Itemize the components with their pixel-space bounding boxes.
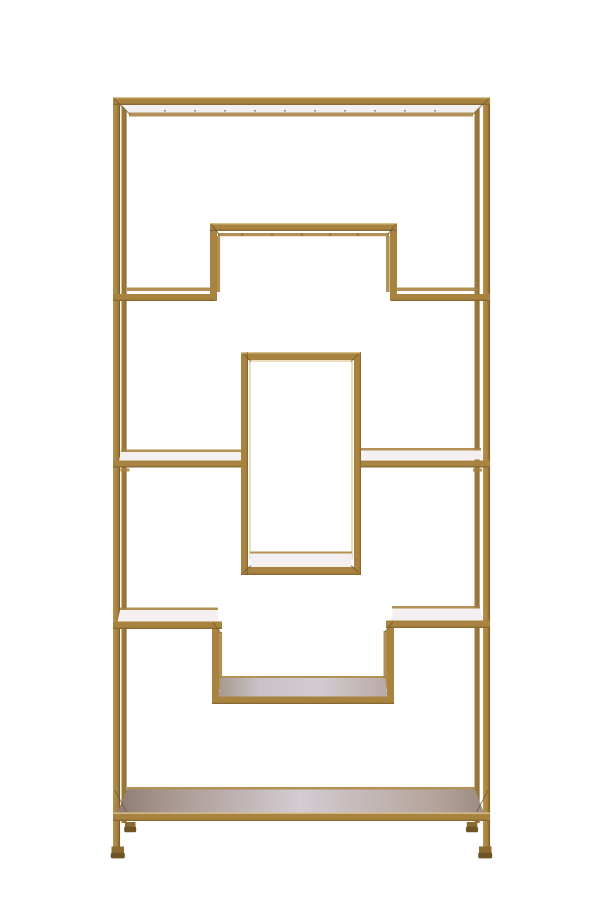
leg-edge-shading xyxy=(119,97,490,848)
bottom-shelf-surface xyxy=(117,790,484,814)
upper-step-right-post xyxy=(390,223,397,301)
top-back-rail xyxy=(129,113,473,117)
right-mid-shelf xyxy=(354,448,490,472)
upper-step-left-post xyxy=(210,223,217,301)
lower-step-right-post xyxy=(387,621,394,704)
lower-step-center-surface xyxy=(219,678,388,697)
right-back-foot xyxy=(466,822,478,832)
bottom-shelf xyxy=(113,787,490,821)
etagere-illustration xyxy=(0,0,600,900)
center-box-interior-shelf xyxy=(250,552,352,568)
right-front-foot xyxy=(478,847,492,859)
upper-step-shelf xyxy=(113,223,490,301)
lower-step-shelf xyxy=(113,606,490,704)
frame-legs xyxy=(113,97,490,848)
left-mid-shelf-surface xyxy=(119,452,245,461)
left-back-foot xyxy=(124,822,136,832)
lower-step-left-post xyxy=(212,622,219,704)
lower-step-left-surface xyxy=(118,610,220,622)
left-front-foot xyxy=(111,847,125,859)
center-box xyxy=(241,352,361,575)
product-photo xyxy=(0,0,600,900)
center-box-inner-line xyxy=(250,361,352,558)
right-mid-shelf-surface xyxy=(357,451,483,460)
lower-step-right-surface xyxy=(391,609,483,622)
feet xyxy=(111,822,492,858)
top-shelf xyxy=(113,97,490,117)
left-mid-shelf xyxy=(113,450,248,472)
top-shelf-surface xyxy=(121,105,482,114)
